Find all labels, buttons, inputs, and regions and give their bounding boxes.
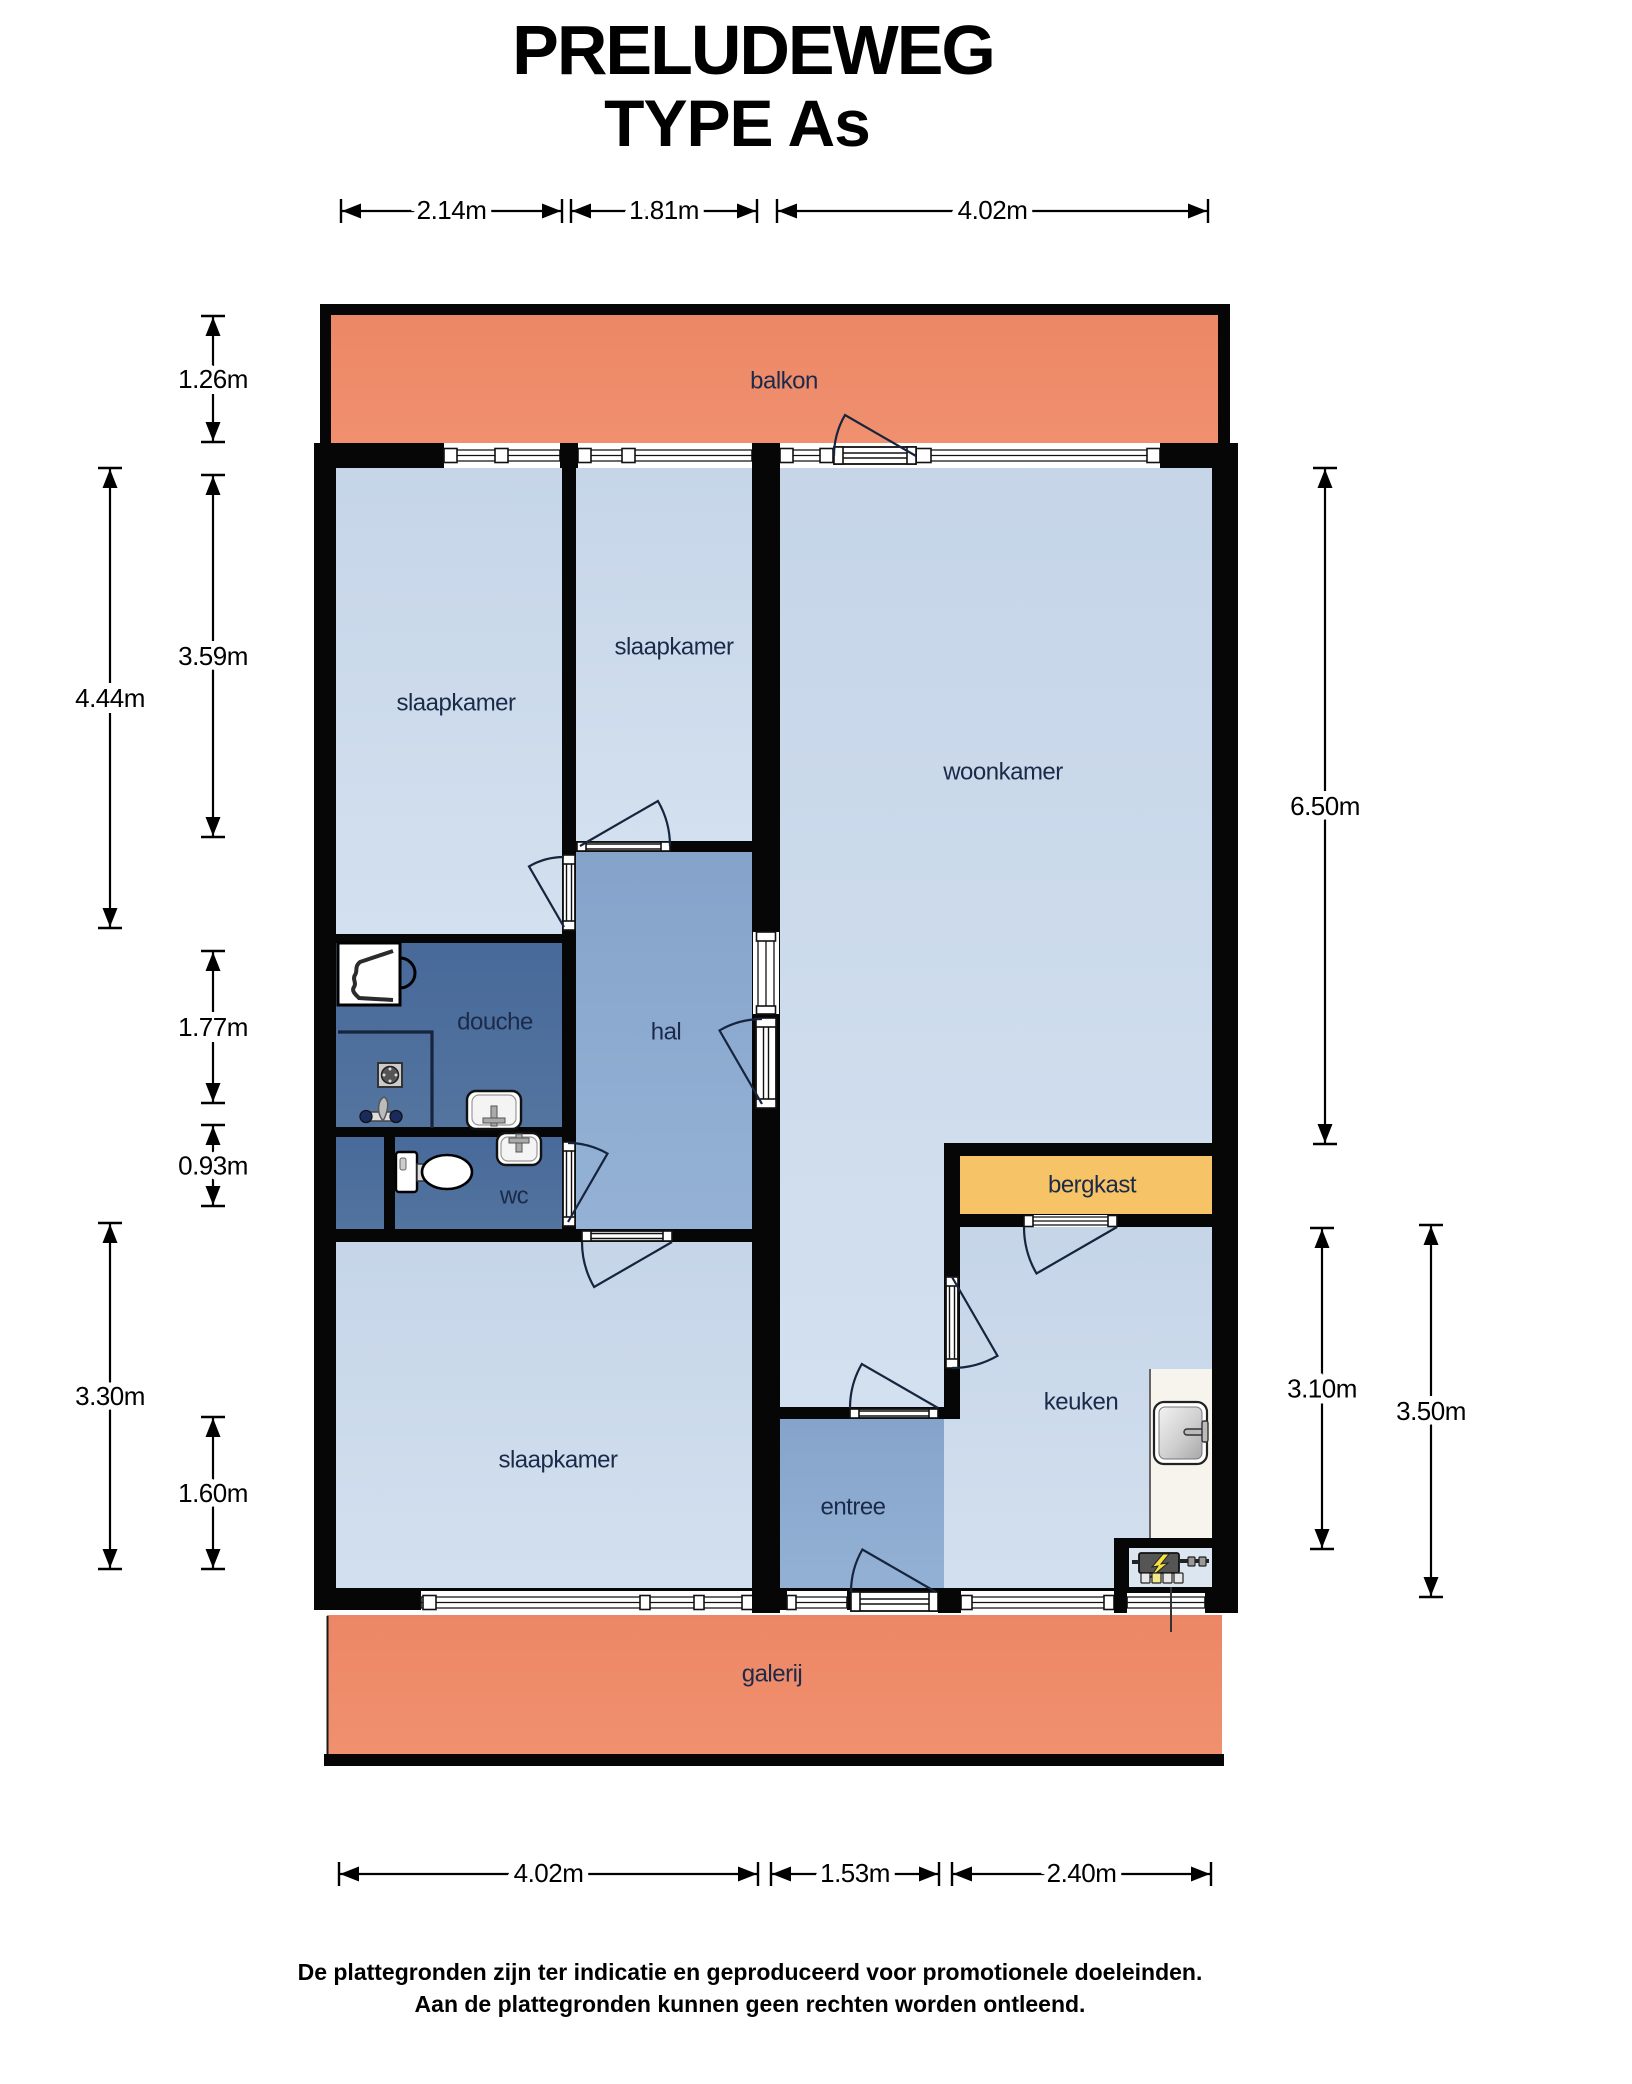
svg-text:slaapkamer: slaapkamer (498, 1447, 618, 1474)
svg-text:galerij: galerij (742, 1661, 803, 1688)
svg-text:3.59m: 3.59m (178, 641, 248, 671)
svg-text:hal: hal (651, 1019, 682, 1046)
svg-text:Aan de plattegronden kunnen ge: Aan de plattegronden kunnen geen rechten… (415, 1991, 1086, 2017)
svg-text:slaapkamer: slaapkamer (614, 634, 734, 661)
svg-text:entree: entree (820, 1494, 885, 1521)
svg-text:balkon: balkon (750, 368, 818, 395)
svg-text:TYPE As: TYPE As (604, 86, 870, 160)
svg-text:4.44m: 4.44m (75, 683, 145, 713)
svg-text:slaapkamer: slaapkamer (396, 690, 516, 717)
svg-text:douche: douche (457, 1009, 533, 1036)
svg-text:wc: wc (499, 1183, 529, 1210)
svg-text:3.30m: 3.30m (75, 1381, 145, 1411)
svg-text:0.93m: 0.93m (178, 1151, 248, 1181)
svg-text:3.10m: 3.10m (1287, 1374, 1357, 1404)
svg-text:bergkast: bergkast (1048, 1172, 1137, 1199)
svg-text:1.81m: 1.81m (629, 195, 699, 225)
svg-text:woonkamer: woonkamer (942, 759, 1063, 786)
svg-text:2.40m: 2.40m (1047, 1858, 1117, 1888)
svg-text:De plattegronden zijn ter indi: De plattegronden zijn ter indicatie en g… (298, 1959, 1203, 1985)
svg-text:4.02m: 4.02m (958, 195, 1028, 225)
svg-text:1.77m: 1.77m (178, 1012, 248, 1042)
svg-text:keuken: keuken (1044, 1389, 1118, 1416)
svg-text:6.50m: 6.50m (1290, 791, 1360, 821)
svg-text:1.53m: 1.53m (820, 1858, 890, 1888)
svg-text:2.14m: 2.14m (417, 195, 487, 225)
svg-text:1.26m: 1.26m (178, 364, 248, 394)
svg-text:4.02m: 4.02m (514, 1858, 584, 1888)
svg-text:3.50m: 3.50m (1396, 1396, 1466, 1426)
svg-text:1.60m: 1.60m (178, 1478, 248, 1508)
svg-text:PRELUDEWEG: PRELUDEWEG (512, 11, 994, 89)
